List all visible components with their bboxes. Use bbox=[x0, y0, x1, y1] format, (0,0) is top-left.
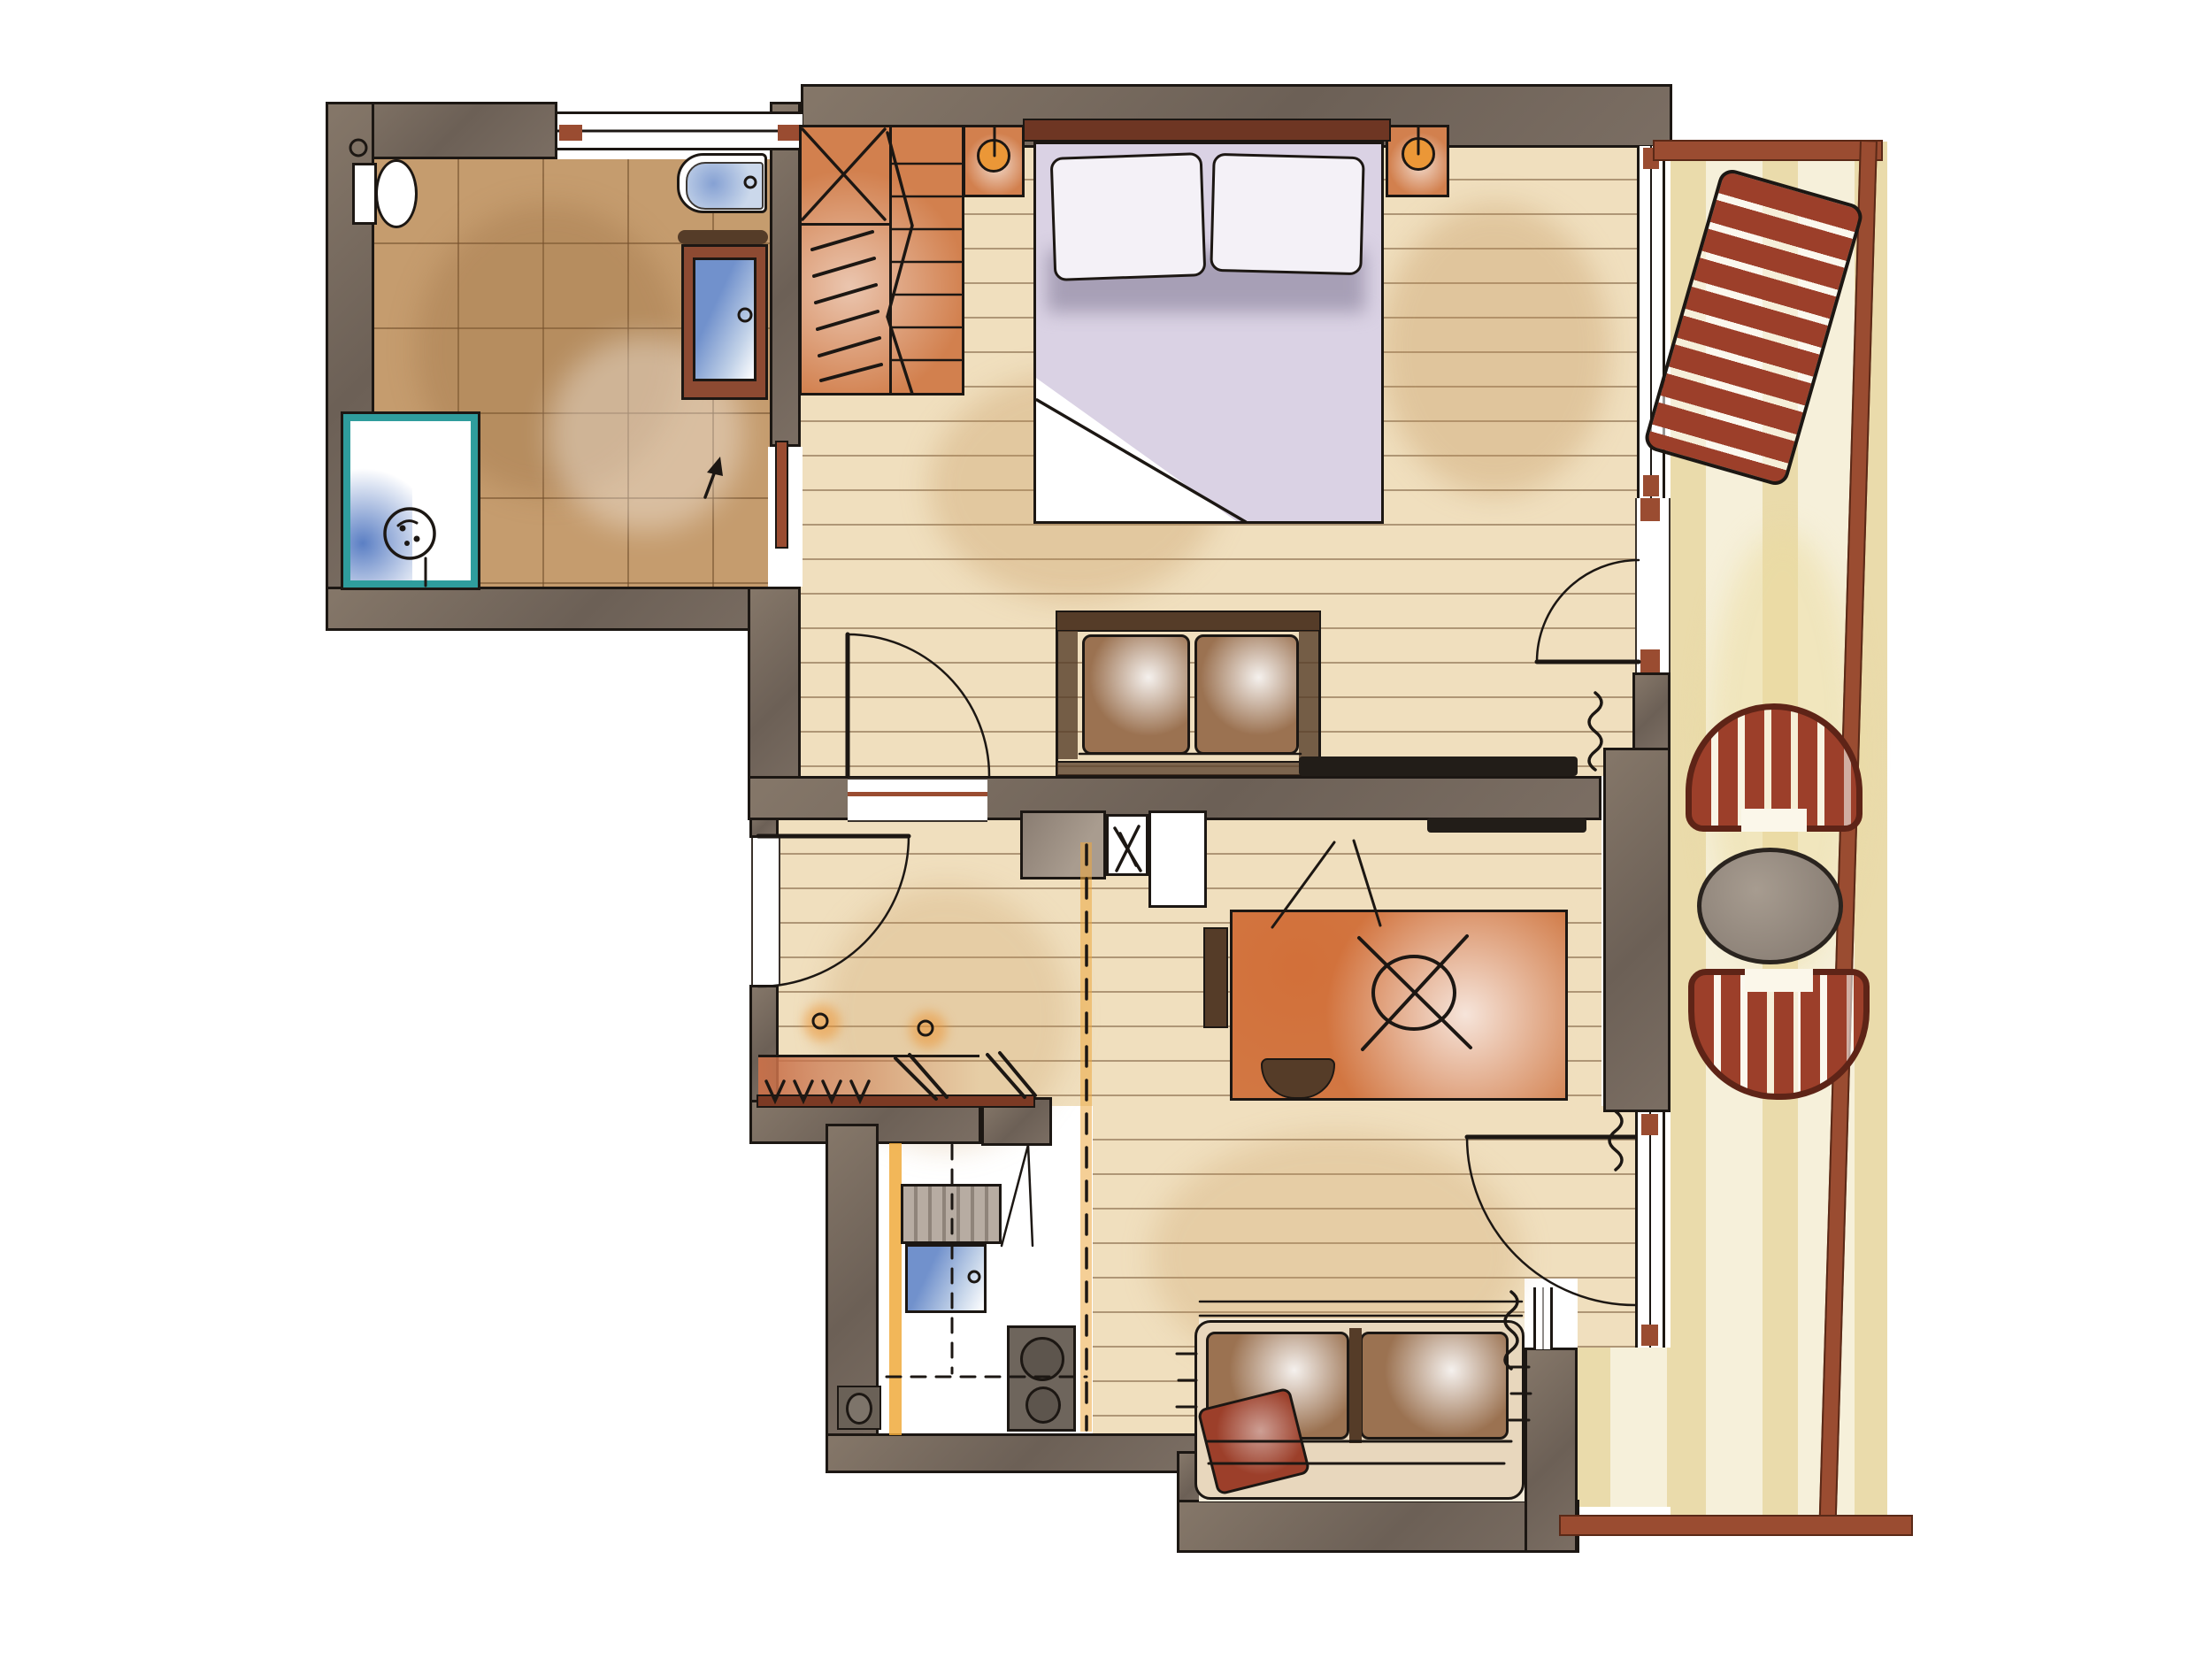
sofa-front-edge bbox=[1056, 761, 1321, 777]
window-sill bbox=[1641, 1114, 1658, 1135]
wash-bedroom2 bbox=[1380, 204, 1610, 495]
coat-shelf bbox=[758, 1055, 979, 1097]
balcony-table bbox=[1697, 848, 1843, 964]
wall-living-south bbox=[826, 1433, 1197, 1473]
wall-west-mid bbox=[748, 587, 801, 808]
wardrobe-shelf-divider bbox=[889, 127, 892, 393]
balcony-railing-bottom bbox=[1559, 1515, 1913, 1536]
bathroom-top-window bbox=[557, 111, 803, 150]
nook-east-window bbox=[1533, 1287, 1553, 1349]
living-east-window-door bbox=[1635, 1112, 1665, 1348]
wall-east-pier-small bbox=[1632, 672, 1671, 750]
bench-divider bbox=[1349, 1328, 1362, 1443]
door-sill bbox=[1640, 498, 1660, 521]
kitchenette-sink bbox=[1106, 814, 1148, 876]
bedroom-balcony-door-opening bbox=[1635, 498, 1671, 672]
wall-east-pier-large bbox=[1603, 748, 1671, 1112]
bench bbox=[1194, 1320, 1525, 1500]
bathtub-inner bbox=[686, 162, 764, 210]
sofa-armrest-left bbox=[1058, 631, 1078, 759]
window-sill bbox=[1641, 1325, 1658, 1346]
lamp-left bbox=[977, 139, 1010, 173]
desk-seat-pad bbox=[1203, 927, 1228, 1028]
stove-burner-large bbox=[1020, 1337, 1064, 1381]
bed-pillow-left bbox=[1050, 152, 1207, 281]
door-sill bbox=[1640, 649, 1660, 672]
floor-socket-glow-1 bbox=[803, 1004, 841, 1041]
coat-rail bbox=[757, 1094, 1035, 1108]
toilet-bowl bbox=[375, 159, 418, 228]
wall-bathroom-bottom bbox=[326, 587, 801, 631]
sofa-backrest bbox=[1056, 611, 1321, 632]
floor-marking-stripe bbox=[1080, 842, 1092, 1432]
bed bbox=[1033, 142, 1384, 524]
balcony-floor-extension bbox=[1575, 1348, 1672, 1507]
shower-water-wash bbox=[350, 457, 412, 580]
exterior-mask bbox=[743, 1144, 827, 1659]
vanity-cabinet bbox=[681, 244, 768, 400]
balcony-railing-top bbox=[1653, 140, 1883, 161]
toilet-tank bbox=[352, 163, 377, 225]
vanity-basin bbox=[693, 257, 757, 381]
bed-pillow-right bbox=[1210, 153, 1364, 275]
kitchen-waste-recess bbox=[837, 1386, 881, 1430]
window-sill bbox=[778, 125, 801, 141]
bench-cushion-right bbox=[1360, 1332, 1509, 1440]
shower-tray bbox=[343, 414, 478, 588]
tv-living-side bbox=[1427, 818, 1586, 833]
sofa bbox=[1056, 611, 1321, 777]
floor-plan bbox=[0, 0, 2212, 1659]
window-sill bbox=[1643, 475, 1659, 496]
vanity-counter-edge bbox=[678, 230, 768, 244]
armchair-seat-opening bbox=[1745, 969, 1812, 992]
tv-bedroom-side bbox=[1299, 757, 1578, 776]
window-sill bbox=[559, 125, 582, 141]
sofa-cushion-left bbox=[1082, 634, 1190, 755]
kitchen-counter-edge-stripe bbox=[889, 1143, 902, 1435]
bedroom-door-threshold bbox=[848, 792, 987, 796]
kitchenette-cabinet bbox=[1020, 810, 1106, 879]
bathtub bbox=[677, 153, 767, 213]
sofa-cushion-right bbox=[1194, 634, 1299, 755]
wardrobe-section-divider bbox=[802, 223, 890, 226]
bedroom-door-opening bbox=[848, 778, 987, 822]
wall-nook-bottom bbox=[1177, 1500, 1579, 1553]
lamp-right bbox=[1402, 137, 1435, 171]
sofa-armrest-right bbox=[1299, 631, 1318, 759]
kitchen-stove bbox=[1007, 1325, 1076, 1432]
armchair-seat-opening bbox=[1741, 809, 1807, 832]
floor-socket-glow-2 bbox=[910, 1011, 947, 1048]
kitchenette-counter bbox=[1148, 810, 1207, 908]
wall-bathroom-right bbox=[770, 102, 801, 447]
stove-burner-small bbox=[1025, 1386, 1061, 1424]
bed-headboard bbox=[1023, 119, 1391, 142]
wardrobe bbox=[799, 125, 964, 396]
entry-door-opening bbox=[751, 838, 780, 985]
kitchen-tall-unit bbox=[901, 1184, 1002, 1244]
kitchen-sink bbox=[905, 1244, 987, 1313]
waste-bin bbox=[846, 1393, 872, 1425]
bathroom-sliding-panel bbox=[775, 441, 788, 549]
